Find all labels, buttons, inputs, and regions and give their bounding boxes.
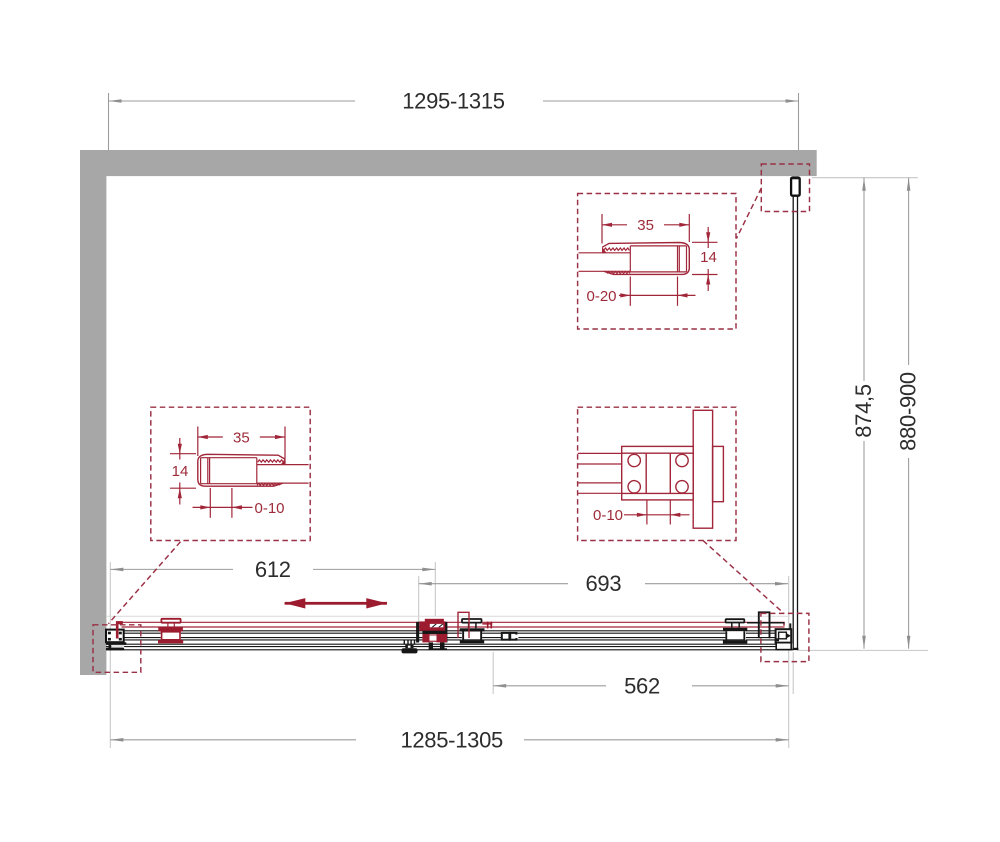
- svg-text:14: 14: [700, 249, 717, 266]
- svg-text:1285-1305: 1285-1305: [400, 727, 503, 752]
- svg-text:14: 14: [172, 463, 189, 480]
- svg-text:0-10: 0-10: [593, 507, 623, 524]
- svg-text:35: 35: [233, 429, 250, 446]
- svg-text:0-10: 0-10: [254, 500, 284, 517]
- svg-text:562: 562: [624, 673, 660, 698]
- svg-text:693: 693: [585, 571, 621, 596]
- svg-text:880-900: 880-900: [896, 372, 921, 451]
- svg-text:35: 35: [637, 217, 654, 234]
- svg-text:1295-1315: 1295-1315: [402, 89, 505, 114]
- svg-text:874,5: 874,5: [851, 384, 876, 438]
- svg-text:612: 612: [255, 557, 291, 582]
- svg-text:0-20: 0-20: [586, 288, 616, 305]
